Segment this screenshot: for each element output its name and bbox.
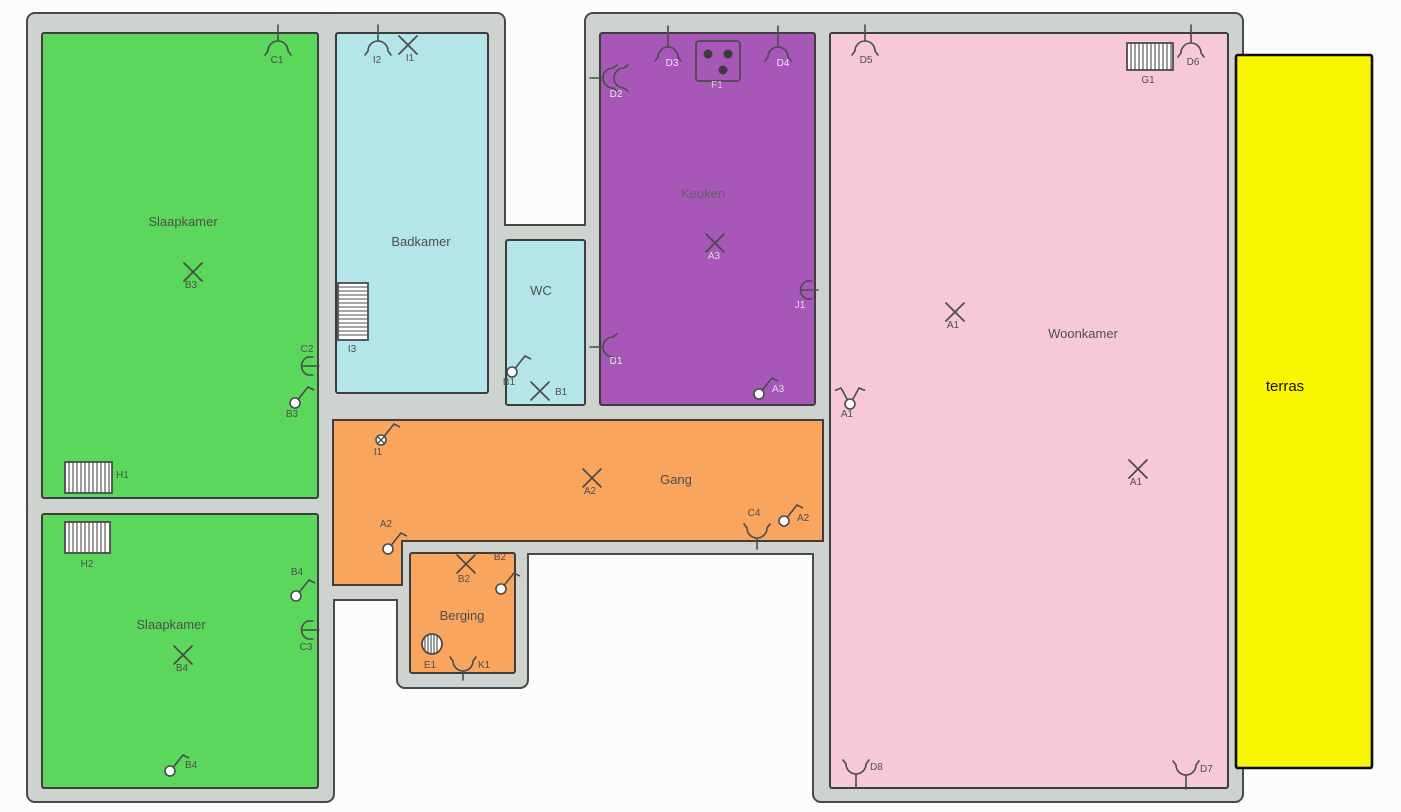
radiator-icon — [65, 462, 112, 493]
room-label-slaapkamer-2: Slaapkamer — [136, 617, 206, 632]
symbol-label-I2: I2 — [373, 55, 382, 66]
room-label-keuken: Keuken — [681, 186, 725, 201]
symbol-label-I3: I3 — [348, 344, 357, 355]
symbol-label-F1: F1 — [711, 80, 723, 91]
symbol-label-C2: C2 — [301, 344, 314, 355]
symbol-label-D6: D6 — [1187, 57, 1200, 68]
floor-plan: SlaapkamerBadkamerWCKeukenWoonkamerGangB… — [0, 0, 1401, 812]
symbol-label-D3: D3 — [666, 58, 679, 69]
symbol-label-A1: A1 — [947, 320, 960, 331]
symbol-label-A2: A2 — [797, 513, 810, 524]
room-woonkamer — [830, 33, 1228, 788]
room-keuken — [600, 33, 815, 405]
room-terras — [1236, 55, 1372, 768]
symbol-label-B3: B3 — [185, 280, 198, 291]
symbol-label-B1: B1 — [555, 387, 568, 398]
symbol-label-D5: D5 — [860, 55, 873, 66]
symbol-label-A1: A1 — [1130, 477, 1143, 488]
symbol-label-B2: B2 — [494, 552, 507, 563]
room-label-berging: Berging — [440, 608, 485, 623]
symbol-label-C4: C4 — [748, 508, 761, 519]
symbol-label-B4: B4 — [185, 760, 198, 771]
symbol-label-D7: D7 — [1200, 764, 1213, 775]
room-wc — [506, 240, 585, 405]
symbol-label-C3: C3 — [300, 642, 313, 653]
room-label-woonkamer: Woonkamer — [1048, 326, 1119, 341]
symbol-label-K1: K1 — [478, 660, 491, 671]
radiator-icon — [1127, 43, 1173, 70]
symbol-label-D2: D2 — [610, 89, 623, 100]
room-label-wc: WC — [530, 283, 552, 298]
symbol-label-D4: D4 — [777, 58, 790, 69]
symbol-label-I1: I1 — [406, 53, 415, 64]
symbol-label-B4: B4 — [291, 567, 304, 578]
symbol-label-B4: B4 — [176, 663, 189, 674]
symbol-label-I1: I1 — [374, 447, 383, 458]
symbol-label-B3: B3 — [286, 409, 299, 420]
symbol-label-H2: H2 — [81, 559, 94, 570]
symbol-label-J1: J1 — [795, 300, 806, 311]
symbol-label-H1: H1 — [116, 470, 129, 481]
radiator-icon — [338, 283, 368, 340]
symbol-label-E1: E1 — [424, 660, 437, 671]
floor-plan-svg: SlaapkamerBadkamerWCKeukenWoonkamerGangB… — [0, 0, 1401, 812]
room-label-gang: Gang — [660, 472, 692, 487]
symbol-label-A3: A3 — [708, 251, 721, 262]
room-label-badkamer: Badkamer — [391, 234, 451, 249]
symbol-label-D1: D1 — [610, 356, 623, 367]
room-label-terras: terras — [1266, 378, 1304, 395]
symbol-label-A2: A2 — [380, 519, 393, 530]
symbol-label-A3: A3 — [772, 384, 785, 395]
symbol-label-C1: C1 — [271, 55, 284, 66]
symbol-label-A2: A2 — [584, 486, 597, 497]
symbol-label-B2: B2 — [458, 574, 471, 585]
radiator-icon — [65, 522, 110, 553]
room-label-slaapkamer-1: Slaapkamer — [148, 214, 218, 229]
room-slaapkamer-1 — [42, 33, 318, 498]
symbol-label-D8: D8 — [870, 762, 883, 773]
boiler-icon — [422, 634, 442, 654]
symbol-label-B1: B1 — [503, 377, 516, 388]
symbol-label-G1: G1 — [1141, 75, 1155, 86]
symbol-label-A1: A1 — [841, 409, 854, 420]
